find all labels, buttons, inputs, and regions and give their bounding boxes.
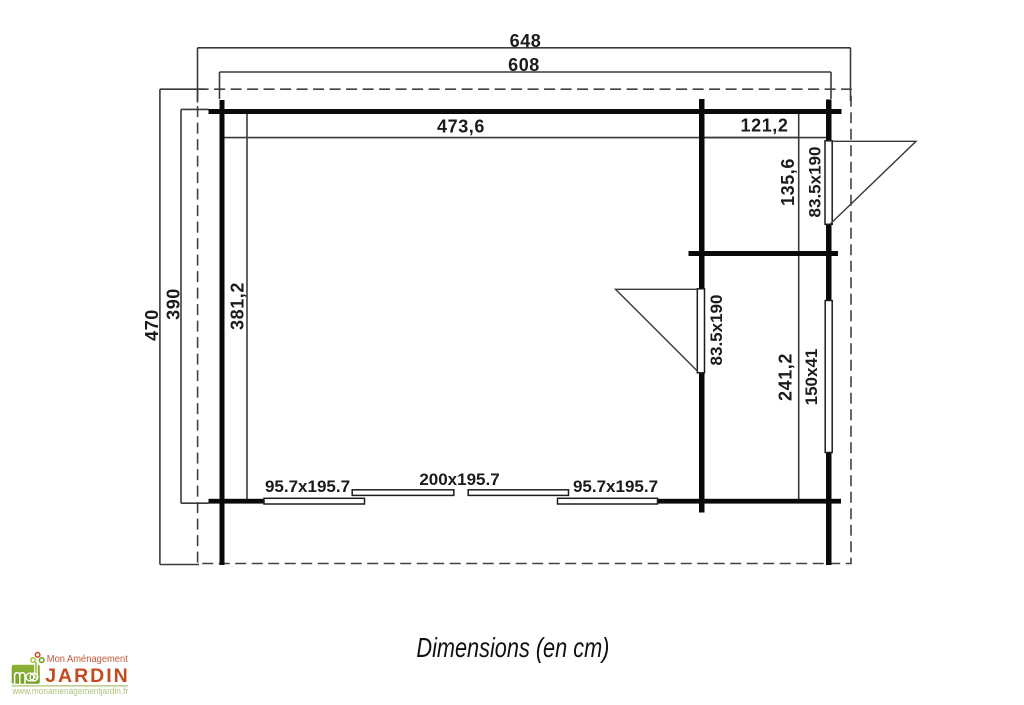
svg-text:135,6: 135,6	[778, 158, 798, 206]
svg-text:473,6: 473,6	[437, 117, 485, 137]
svg-text:200x195.7: 200x195.7	[419, 470, 499, 489]
svg-text:381,2: 381,2	[228, 282, 248, 330]
svg-text:95.7x195.7: 95.7x195.7	[573, 477, 658, 496]
svg-text:95.7x195.7: 95.7x195.7	[265, 477, 350, 496]
svg-text:83.5x190: 83.5x190	[806, 147, 825, 218]
svg-text:83.5x190: 83.5x190	[707, 295, 726, 366]
svg-text:Dimensions (en cm): Dimensions (en cm)	[416, 632, 609, 663]
svg-text:121,2: 121,2	[740, 116, 788, 136]
svg-text:470: 470	[142, 309, 162, 341]
svg-text:608: 608	[508, 55, 540, 75]
svg-text:390: 390	[164, 288, 184, 320]
svg-text:JARDIN: JARDIN	[45, 665, 128, 687]
svg-text:648: 648	[510, 31, 542, 51]
svg-text:241,2: 241,2	[776, 353, 796, 401]
svg-text:Mon Aménagement: Mon Aménagement	[47, 653, 128, 665]
svg-text:www.monamenagementjardin.fr: www.monamenagementjardin.fr	[11, 686, 128, 696]
svg-text:150x41: 150x41	[802, 349, 821, 406]
